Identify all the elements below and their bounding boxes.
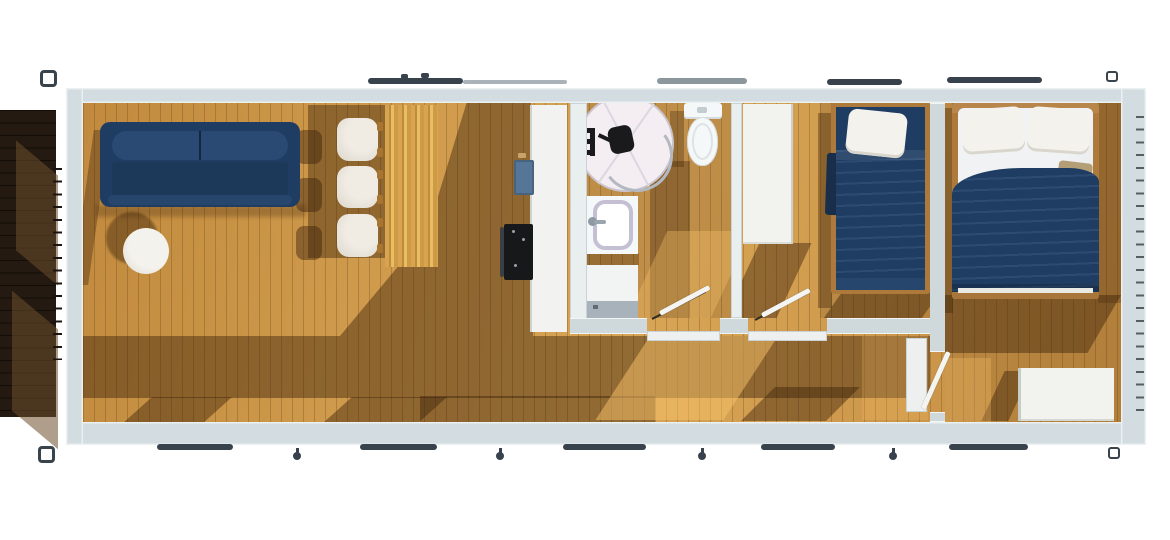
chair-shadow [296,226,322,260]
window-bar [463,80,567,84]
window-bar [157,444,233,450]
wardrobe [1018,368,1114,421]
outdoor-deck [0,110,56,417]
lounge-chair [337,214,378,257]
footboard [952,293,1099,299]
sofa-front-edge [108,195,292,205]
deck-sunlight-patch [12,291,58,450]
lounge-chair [337,118,378,161]
dining-table [385,105,438,267]
window-bar [827,79,902,85]
exterior-wall-bottom [66,422,1146,445]
lounge-chair [337,166,378,208]
window-bar [761,444,835,450]
oven-handle [500,227,504,277]
right-edge-ticks [1136,116,1144,422]
oven-cooktop [504,224,533,280]
wall-hallway-segment [720,318,748,334]
window-bar [360,444,437,450]
wall-hallway-segment [827,318,930,334]
edge-pin-marker [698,452,706,460]
pillow [961,106,1026,155]
coffee-table [123,228,169,274]
exterior-wall-left [66,88,83,445]
single-bed-duvet [836,150,925,290]
washing-machine [587,265,638,323]
sofa-cushion-seam [199,131,201,160]
container-corner-fitting [1108,447,1120,459]
double-bed-duvet [952,168,1099,292]
exterior-wall-top [66,88,1146,103]
floor-plan-render [0,0,1170,540]
wall-living-bathroom [570,103,587,334]
sofa [100,122,300,207]
wardrobe [743,104,793,244]
counter-item-nub [401,74,408,79]
window-bar [563,444,646,450]
faucet-spout [594,220,606,224]
deck-sunlight-patch [16,140,58,285]
door-threshold [647,331,720,341]
kitchen-counter [530,105,567,332]
door-threshold [748,331,827,341]
container-corner-fitting [40,70,57,87]
window-bar [949,444,1028,450]
wall-bathroom-bedroom [731,103,742,318]
pillow [845,108,908,159]
window-bar [947,77,1042,83]
pillow [1027,106,1092,155]
toilet-seat [692,123,713,160]
edge-pin-marker [889,452,897,460]
window-bar [368,78,463,84]
washer-control [593,305,598,309]
edge-pin-marker [496,452,504,460]
toilet-flush-button [697,107,707,113]
deck-edge-ticks [53,168,62,360]
duvet-foot-fold [836,278,925,290]
edge-pin-marker [293,452,301,460]
wall-master-separator [930,103,945,352]
window-bar [657,78,747,84]
sink-basin [593,200,633,250]
washer-top [587,265,638,301]
toilet-bowl [687,117,718,166]
container-corner-fitting [38,446,55,463]
counter-item-nub [421,73,429,78]
sofa-seat [112,162,288,196]
kitchen-sink [514,160,534,195]
wall-master-separator-stub [930,412,945,422]
wall-hallway-segment [570,318,647,334]
counter-item [518,153,526,158]
container-corner-fitting [1106,71,1118,82]
